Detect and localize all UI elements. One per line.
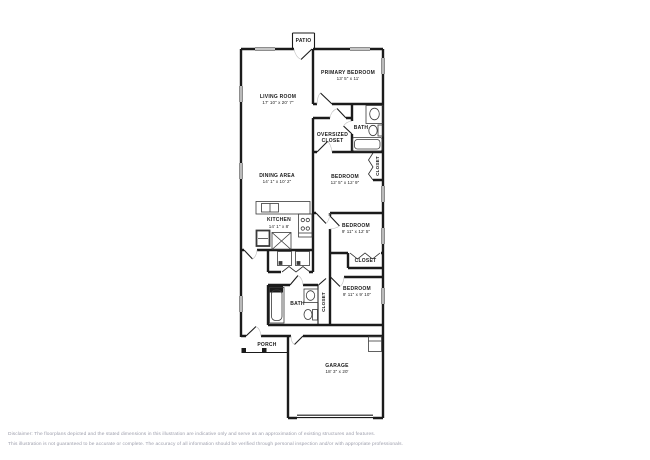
dining-area-dims: 14' 1" x 10' 2" xyxy=(259,179,295,185)
garage-name: GARAGE xyxy=(325,362,348,368)
closet-bedroom3-label: CLOSET xyxy=(355,258,377,264)
room-label-bedroom2: BEDROOM 12' 5" x 12' 9" xyxy=(331,173,360,185)
disclaimer-line-1: Disclaimer: The floorplans depicted and … xyxy=(8,432,375,437)
stove xyxy=(299,214,313,237)
closet-lower-label: CLOSET xyxy=(321,292,327,312)
toilet-upper xyxy=(369,125,377,135)
porch-label: PORCH xyxy=(257,342,276,348)
kitchen-name: KITCHEN xyxy=(267,217,291,223)
living-room-dims: 17' 10" x 20' 7" xyxy=(260,100,296,106)
room-label-garage: GARAGE 18' 3" x 20' xyxy=(325,362,348,374)
room-label-closet-upper: CLOSET xyxy=(375,156,381,176)
room-label-primary-bedroom: PRIMARY BEDROOM 13' 5" x 11' xyxy=(321,69,375,81)
room-label-closet-bedroom3: CLOSET xyxy=(355,258,377,264)
room-label-oversized-closet: OVERSIZED CLOSET xyxy=(316,132,350,145)
bath-upper-label: BATH xyxy=(354,124,369,130)
garage-dims: 18' 3" x 20' xyxy=(325,369,348,375)
room-label-patio: PATIO xyxy=(296,37,312,43)
room-label-living-room: LIVING ROOM 17' 10" x 20' 7" xyxy=(260,93,296,105)
disclaimer-line-2: This illustration is not guaranteed to b… xyxy=(8,442,403,447)
room-label-bedroom3: BEDROOM 9' 11" x 12' 5" xyxy=(342,222,370,234)
room-label-kitchen: KITCHEN 14' 1" x 8' xyxy=(267,217,291,229)
primary-bedroom-dims: 13' 5" x 11' xyxy=(321,76,375,82)
closet-upper-label: CLOSET xyxy=(375,156,381,176)
oversized-closet-name: OVERSIZED CLOSET xyxy=(316,132,350,145)
toilet-tank-lower xyxy=(313,310,318,321)
room-label-porch: PORCH xyxy=(257,342,276,348)
bedroom3-dims: 9' 11" x 12' 5" xyxy=(342,229,370,235)
room-label-bedroom4: BEDROOM 9' 11" x 9' 10" xyxy=(343,285,371,297)
room-label-bath-lower: BATH xyxy=(290,301,305,307)
toilet-lower xyxy=(304,310,312,320)
bedroom4-dims: 9' 11" x 9' 10" xyxy=(343,292,371,298)
bedroom4-name: BEDROOM xyxy=(343,285,371,291)
bath-lower-label: BATH xyxy=(290,301,305,307)
sink-lower xyxy=(306,291,314,301)
bedroom2-dims: 12' 5" x 12' 9" xyxy=(331,180,360,186)
dining-area-name: DINING AREA xyxy=(259,172,295,178)
kitchen-dims: 14' 1" x 8' xyxy=(267,224,291,230)
water-heater xyxy=(369,337,382,352)
floorplan-page: PATIO PRIMARY BEDROOM 13' 5" x 11' LIVIN… xyxy=(0,0,650,460)
patio-label: PATIO xyxy=(296,37,312,43)
living-room-name: LIVING ROOM xyxy=(260,93,296,99)
room-label-dining-area: DINING AREA 14' 1" x 10' 2" xyxy=(259,172,295,184)
bedroom2-name: BEDROOM xyxy=(331,173,360,179)
room-label-closet-lower: CLOSET xyxy=(321,292,327,312)
shower-wall xyxy=(268,285,283,293)
bedroom3-name: BEDROOM xyxy=(342,222,370,228)
room-label-bath-upper: BATH xyxy=(354,124,369,130)
primary-bedroom-name: PRIMARY BEDROOM xyxy=(321,69,375,75)
sink-upper xyxy=(370,108,380,120)
